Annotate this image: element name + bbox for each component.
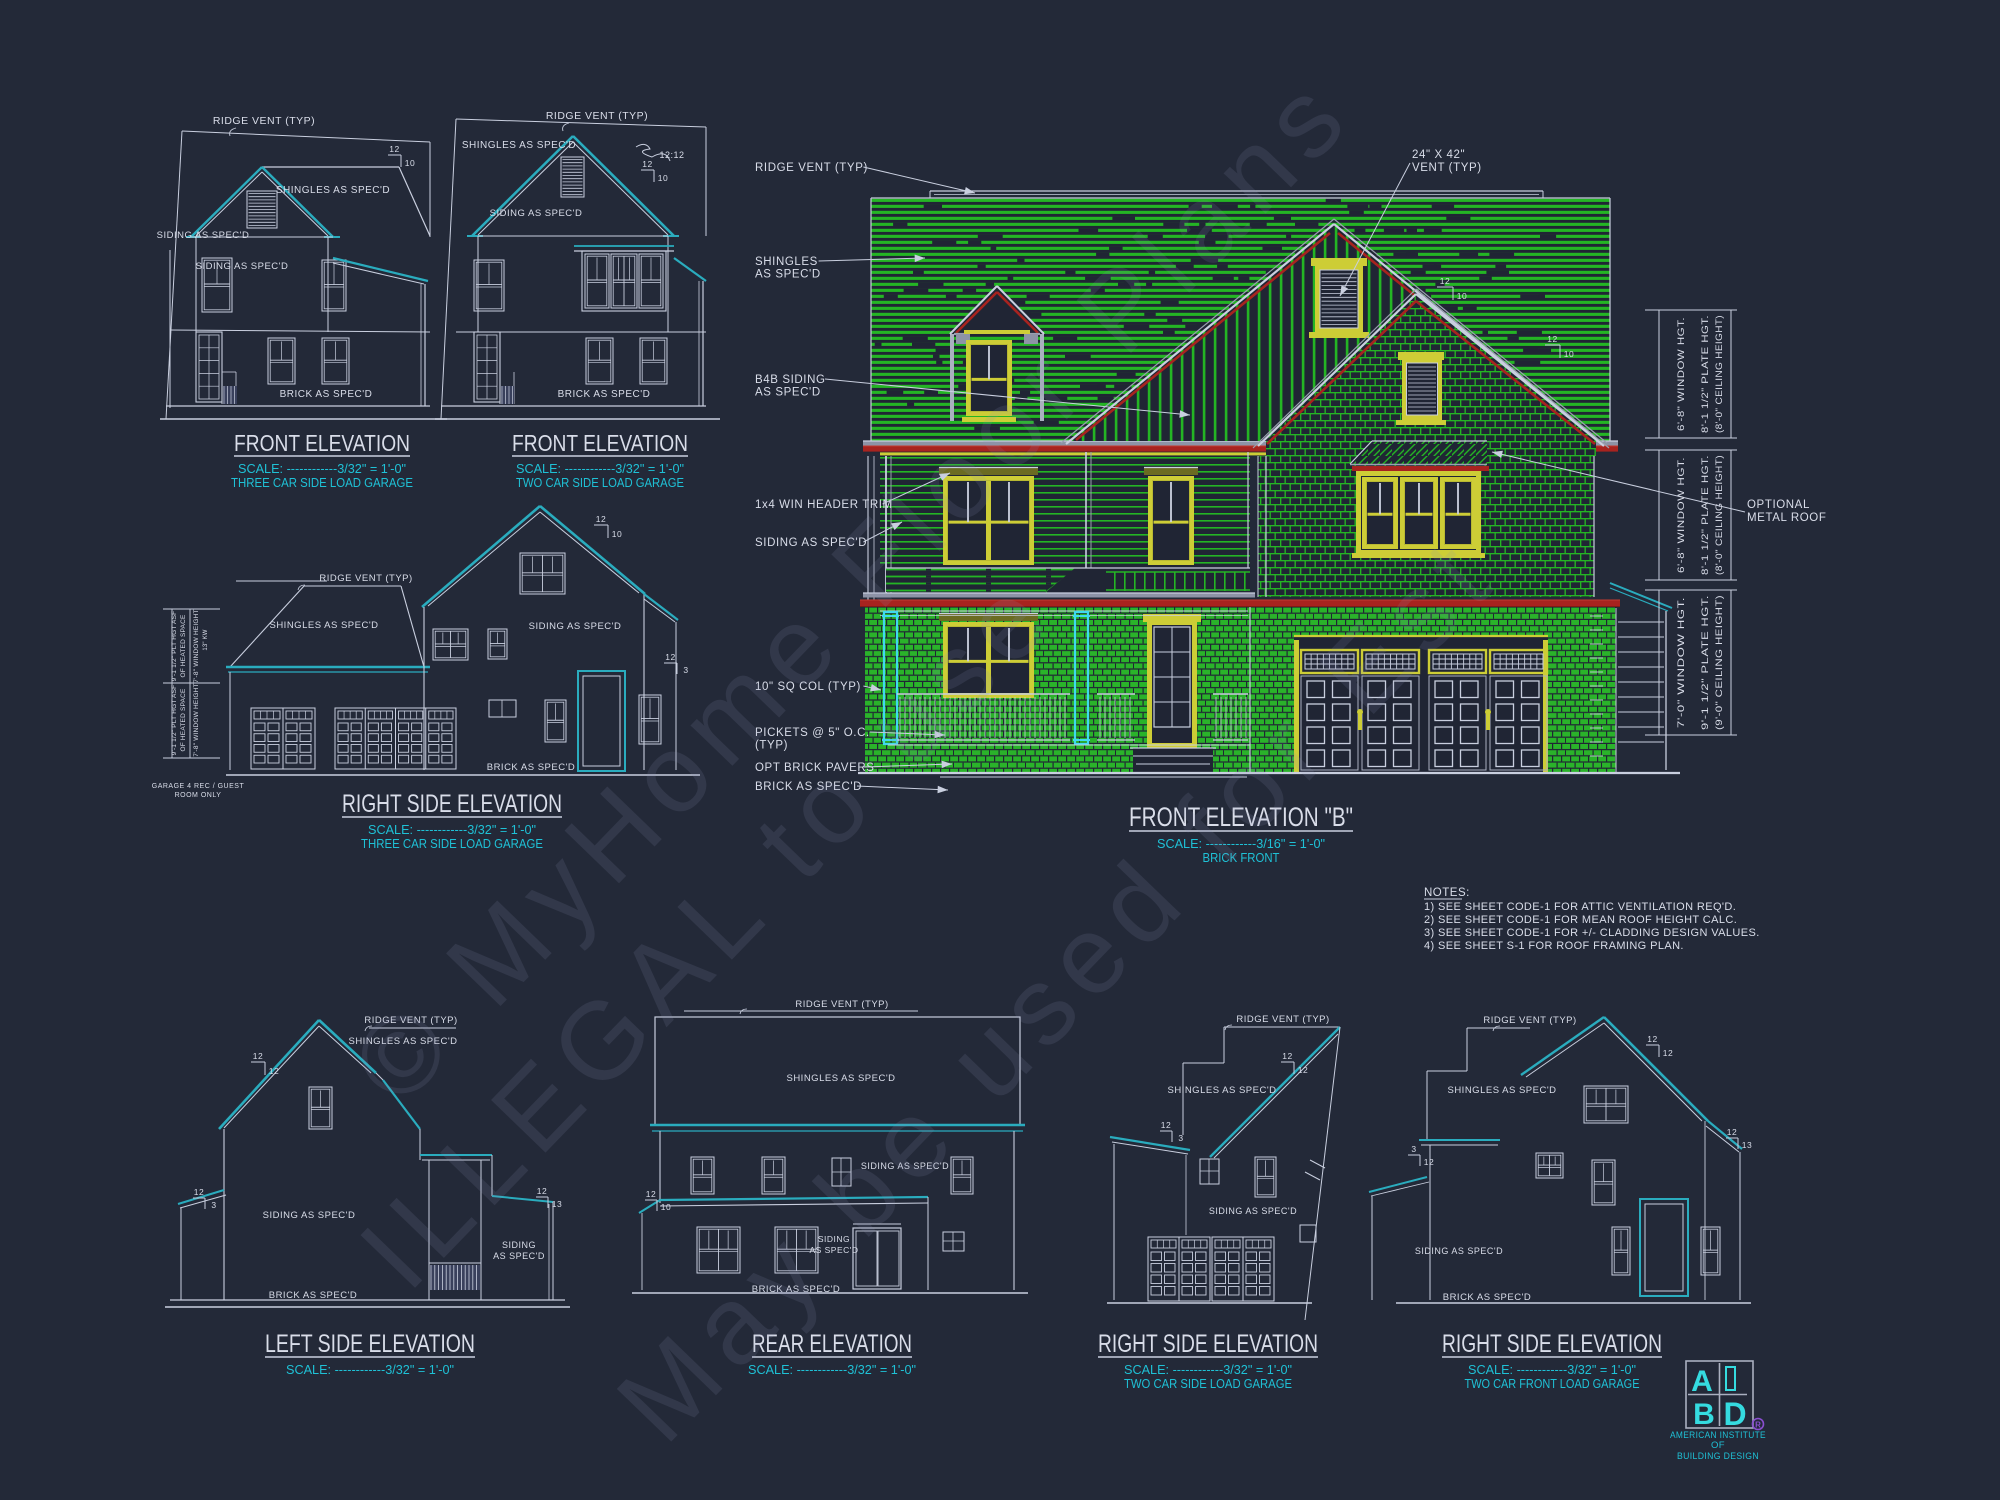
svg-text:RIDGE VENT (TYP): RIDGE VENT (TYP) <box>319 573 412 584</box>
svg-text:(8'-0" CEILING HEIGHT): (8'-0" CEILING HEIGHT) <box>1714 455 1724 575</box>
svg-text:12: 12 <box>1298 1065 1308 1075</box>
svg-text:SHINGLES AS SPEC'D: SHINGLES AS SPEC'D <box>1447 1085 1556 1096</box>
svg-text:RIDGE VENT (TYP): RIDGE VENT (TYP) <box>1483 1015 1576 1026</box>
svg-text:SCALE: ------------3/32" = 1'-: SCALE: ------------3/32" = 1'-0" <box>1468 1362 1636 1377</box>
svg-text:VENT (TYP): VENT (TYP) <box>1412 162 1482 174</box>
svg-text:SCALE: ------------3/32" = 1'-: SCALE: ------------3/32" = 1'-0" <box>368 822 536 837</box>
svg-text:RIGHT SIDE ELEVATION: RIGHT SIDE ELEVATION <box>342 790 562 818</box>
svg-text:GARAGE 4 REC / GUEST: GARAGE 4 REC / GUEST <box>152 783 245 790</box>
svg-text:12: 12 <box>1647 1034 1657 1044</box>
svg-text:FRONT ELEVATION: FRONT ELEVATION <box>234 430 410 456</box>
svg-text:12: 12 <box>646 1189 656 1199</box>
svg-text:BRICK AS SPEC'D: BRICK AS SPEC'D <box>269 1290 358 1301</box>
svg-text:RIDGE VENT (TYP): RIDGE VENT (TYP) <box>213 115 315 127</box>
svg-text:LEFT SIDE ELEVATION: LEFT SIDE ELEVATION <box>265 1330 475 1358</box>
svg-text:10: 10 <box>1564 349 1574 359</box>
svg-text:10: 10 <box>658 173 668 183</box>
svg-text:13: 13 <box>552 1199 562 1209</box>
svg-text:SIDING AS SPEC'D: SIDING AS SPEC'D <box>1209 1206 1297 1216</box>
svg-text:10: 10 <box>405 158 415 168</box>
svg-text:12: 12 <box>1424 1157 1434 1167</box>
svg-text:METAL ROOF: METAL ROOF <box>1747 512 1826 524</box>
svg-text:TWO CAR SIDE LOAD GARAGE: TWO CAR SIDE LOAD GARAGE <box>516 475 684 490</box>
svg-text:12: 12 <box>1663 1048 1673 1058</box>
svg-text:SIDING AS SPEC'D: SIDING AS SPEC'D <box>529 621 622 632</box>
svg-text:12: 12 <box>642 159 652 169</box>
svg-text:AS SPEC'D: AS SPEC'D <box>755 387 821 399</box>
svg-text:10: 10 <box>1457 291 1467 301</box>
svg-text:(8'-0" CEILING HEIGHT): (8'-0" CEILING HEIGHT) <box>1714 315 1724 433</box>
svg-text:OF HEATED SPACE: OF HEATED SPACE <box>180 614 187 678</box>
svg-text:SCALE: ------------3/32" = 1'-: SCALE: ------------3/32" = 1'-0" <box>238 461 406 476</box>
svg-text:RIDGE VENT (TYP): RIDGE VENT (TYP) <box>755 162 868 174</box>
svg-text:3: 3 <box>1411 1144 1416 1154</box>
svg-text:9'-1 1/2" PLT HGT ASF: 9'-1 1/2" PLT HGT ASF <box>171 611 178 682</box>
svg-text:SIDING: SIDING <box>502 1240 536 1250</box>
svg-text:RIGHT SIDE ELEVATION: RIGHT SIDE ELEVATION <box>1442 1330 1662 1358</box>
svg-text:D: D <box>1723 1396 1746 1432</box>
svg-text:13" KW: 13" KW <box>203 629 209 650</box>
svg-text:9'-1 1/2" PLATE HGT.: 9'-1 1/2" PLATE HGT. <box>1700 595 1711 730</box>
svg-text:TWO CAR FRONT LOAD GARAGE: TWO CAR FRONT LOAD GARAGE <box>1465 1376 1640 1391</box>
svg-text:(9'-0" CEILING HEIGHT): (9'-0" CEILING HEIGHT) <box>1714 595 1724 730</box>
svg-text:A: A <box>1691 1365 1713 1398</box>
svg-text:12: 12 <box>596 514 606 524</box>
svg-text:AS SPEC'D: AS SPEC'D <box>493 1251 545 1261</box>
svg-text:7'-0" WINDOW HGT.: 7'-0" WINDOW HGT. <box>1676 597 1687 728</box>
svg-text:SHINGLES AS SPEC'D: SHINGLES AS SPEC'D <box>269 620 378 631</box>
svg-text:12:12: 12:12 <box>659 150 684 160</box>
svg-text:7'-8" WINDOW HEIGHT: 7'-8" WINDOW HEIGHT <box>193 683 200 756</box>
svg-text:BUILDING DESIGN: BUILDING DESIGN <box>1677 1451 1759 1462</box>
svg-text:SIDING AS SPEC'D: SIDING AS SPEC'D <box>1415 1246 1503 1256</box>
svg-text:12: 12 <box>1547 334 1557 344</box>
svg-text:SHINGLES: SHINGLES <box>755 256 818 268</box>
svg-text:RIDGE VENT (TYP): RIDGE VENT (TYP) <box>1236 1014 1329 1025</box>
svg-text:SIDING AS SPEC'D: SIDING AS SPEC'D <box>490 208 583 219</box>
svg-text:BRICK AS SPEC'D: BRICK AS SPEC'D <box>558 389 651 400</box>
svg-text:13: 13 <box>1742 1140 1752 1150</box>
svg-text:OPTIONAL: OPTIONAL <box>1747 499 1810 511</box>
svg-text:10: 10 <box>612 529 622 539</box>
svg-text:SIDING AS SPEC'D: SIDING AS SPEC'D <box>263 1210 356 1221</box>
svg-text:3: 3 <box>211 1200 216 1210</box>
svg-text:SCALE: ------------3/32" = 1'-: SCALE: ------------3/32" = 1'-0" <box>286 1362 454 1377</box>
svg-text:2) SEE SHEET CODE-1 FOR MEAN: 2) SEE SHEET CODE-1 FOR MEAN ROOF HEIGHT… <box>1424 914 1737 926</box>
svg-text:12: 12 <box>269 1066 279 1076</box>
svg-text:R: R <box>1755 1421 1761 1430</box>
svg-text:12: 12 <box>1440 276 1450 286</box>
svg-text:8'-1 1/2" PLATE HGT.: 8'-1 1/2" PLATE HGT. <box>1700 315 1711 433</box>
svg-text:SCALE: ------------3/32" = 1'-: SCALE: ------------3/32" = 1'-0" <box>1124 1362 1292 1377</box>
svg-text:FRONT ELEVATION: FRONT ELEVATION <box>512 430 688 456</box>
svg-text:RIGHT SIDE ELEVATION: RIGHT SIDE ELEVATION <box>1098 1330 1318 1358</box>
svg-text:4) SEE SHEET S-1 FOR ROOF FRA: 4) SEE SHEET S-1 FOR ROOF FRAMING PLAN. <box>1424 940 1684 952</box>
svg-text:3) SEE SHEET CODE-1 FOR +/- C: 3) SEE SHEET CODE-1 FOR +/- CLADDING DES… <box>1424 927 1760 939</box>
svg-text:12: 12 <box>194 1187 204 1197</box>
svg-text:6'-8" WINDOW HGT.: 6'-8" WINDOW HGT. <box>1676 457 1687 573</box>
svg-text:24" X 42": 24" X 42" <box>1412 149 1465 161</box>
svg-text:12: 12 <box>389 144 399 154</box>
svg-text:12: 12 <box>1161 1120 1171 1130</box>
svg-text:AS SPEC'D: AS SPEC'D <box>755 269 821 281</box>
svg-text:NOTES:: NOTES: <box>1424 887 1470 899</box>
svg-text:9'-1 1/2" PLT HGT ASF: 9'-1 1/2" PLT HGT ASF <box>171 685 178 756</box>
svg-text:RIDGE VENT (TYP): RIDGE VENT (TYP) <box>546 110 648 122</box>
svg-text:SIDING AS SPEC'D: SIDING AS SPEC'D <box>157 230 250 241</box>
svg-text:THREE CAR SIDE LOAD GARAGE: THREE CAR SIDE LOAD GARAGE <box>231 475 413 490</box>
svg-text:OF: OF <box>1711 1440 1725 1451</box>
svg-text:BRICK AS SPEC'D: BRICK AS SPEC'D <box>1443 1292 1532 1303</box>
svg-text:OF HEATED SPACE: OF HEATED SPACE <box>180 688 187 752</box>
svg-text:BRICK AS SPEC'D: BRICK AS SPEC'D <box>280 389 373 400</box>
svg-text:7'-8" WINDOW HEIGHT: 7'-8" WINDOW HEIGHT <box>193 609 200 682</box>
svg-text:12: 12 <box>665 652 675 662</box>
svg-text:SHINGLES AS SPEC'D: SHINGLES AS SPEC'D <box>462 140 576 151</box>
svg-text:ROOM ONLY: ROOM ONLY <box>175 792 222 799</box>
svg-text:TWO CAR SIDE LOAD GARAGE: TWO CAR SIDE LOAD GARAGE <box>1124 1376 1292 1391</box>
svg-text:3: 3 <box>1178 1133 1183 1143</box>
svg-text:B4B SIDING: B4B SIDING <box>755 374 826 386</box>
svg-text:12: 12 <box>253 1051 263 1061</box>
svg-text:SHINGLES AS SPEC'D: SHINGLES AS SPEC'D <box>276 185 390 196</box>
svg-text:SHINGLES AS SPEC'D: SHINGLES AS SPEC'D <box>1167 1085 1276 1096</box>
svg-text:12: 12 <box>1727 1127 1737 1137</box>
svg-text:10: 10 <box>661 1202 671 1212</box>
svg-text:8'-1 1/2" PLATE HGT.: 8'-1 1/2" PLATE HGT. <box>1700 455 1711 575</box>
svg-text:12: 12 <box>1282 1051 1292 1061</box>
svg-text:6'-8" WINDOW HGT.: 6'-8" WINDOW HGT. <box>1676 317 1687 431</box>
svg-text:BRICK AS SPEC'D: BRICK AS SPEC'D <box>487 762 576 773</box>
svg-text:1) SEE SHEET CODE-1 FOR ATTIC: 1) SEE SHEET CODE-1 FOR ATTIC VENTILATIO… <box>1424 901 1736 913</box>
svg-text:SIDING AS SPEC'D: SIDING AS SPEC'D <box>196 261 289 272</box>
svg-text:RIDGE VENT (TYP): RIDGE VENT (TYP) <box>795 999 888 1010</box>
svg-text:SCALE: ------------3/32" = 1'-: SCALE: ------------3/32" = 1'-0" <box>516 461 684 476</box>
svg-text:B: B <box>1693 1398 1715 1431</box>
